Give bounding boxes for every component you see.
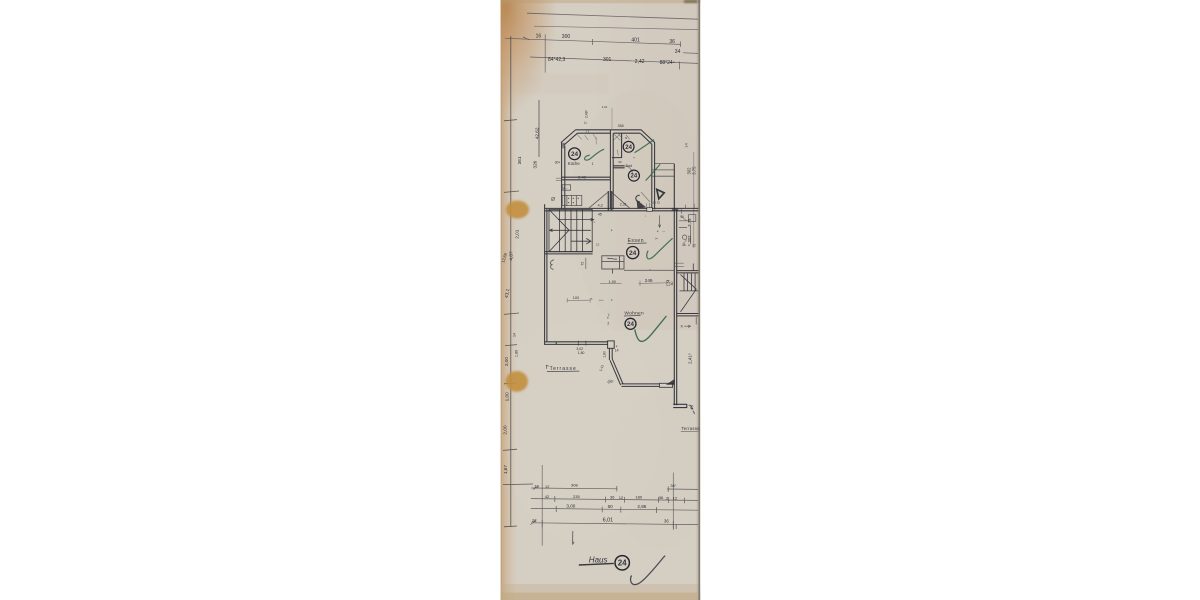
svg-text:34: 34 <box>675 49 681 55</box>
svg-text:308: 308 <box>571 483 578 488</box>
svg-text:1,80: 1,80 <box>578 351 585 355</box>
svg-text:Küche: Küche <box>568 161 581 166</box>
svg-text:12: 12 <box>619 495 624 500</box>
svg-text:100: 100 <box>573 296 579 300</box>
svg-text:16: 16 <box>536 34 542 40</box>
svg-text:22: 22 <box>692 244 696 248</box>
svg-text:36⁽: 36⁽ <box>670 483 675 488</box>
svg-text:K←: K← <box>563 186 569 190</box>
svg-text:301: 301 <box>603 57 612 63</box>
svg-text:88°24ⁿ: 88°24ⁿ <box>660 60 675 66</box>
svg-text:12: 12 <box>673 496 678 501</box>
svg-text:326: 326 <box>533 160 538 168</box>
svg-text:2,00: 2,00 <box>504 357 509 367</box>
svg-text:80: 80 <box>670 281 674 285</box>
svg-text:36: 36 <box>664 518 669 523</box>
svg-text:36: 36 <box>669 39 675 45</box>
svg-text:1,67: 1,67 <box>503 465 508 475</box>
svg-text:60: 60 <box>608 504 614 509</box>
svg-text:24: 24 <box>631 174 638 180</box>
svg-text:2: 2 <box>607 321 609 325</box>
svg-text:249: 249 <box>645 278 653 283</box>
svg-text:2,01: 2,01 <box>515 229 520 239</box>
svg-text:30×: 30× <box>555 161 561 165</box>
svg-text:15 32: 15 32 <box>653 200 661 204</box>
svg-text:4.10: 4.10 <box>602 105 608 109</box>
svg-text:36: 36 <box>682 243 686 247</box>
svg-text:3,75: 3,75 <box>691 166 696 175</box>
svg-text:24: 24 <box>625 145 632 151</box>
svg-text:1²: 1² <box>584 121 587 125</box>
svg-text:42: 42 <box>545 494 550 499</box>
svg-text:×: × <box>633 155 635 159</box>
svg-text:1: 1 <box>592 162 594 166</box>
svg-text:235: 235 <box>573 494 580 499</box>
svg-text:↔: ↔ <box>648 267 651 271</box>
svg-text:12: 12 <box>596 243 600 247</box>
svg-text:1,80: 1,80 <box>514 350 518 357</box>
svg-text:1,80: 1,80 <box>602 351 606 358</box>
svg-text:90: 90 <box>618 160 622 164</box>
svg-text:×: × <box>616 344 618 348</box>
svg-text:84°42,3: 84°42,3 <box>548 57 566 63</box>
svg-text:4,3: 4,3 <box>598 204 603 208</box>
svg-text:180: 180 <box>635 495 642 500</box>
svg-text:24: 24 <box>627 321 634 328</box>
svg-text:401: 401 <box>631 38 640 44</box>
svg-text:45: 45 <box>598 212 602 216</box>
svg-text:×: × <box>611 228 613 232</box>
svg-text:×: × <box>591 297 593 301</box>
svg-text:36: 36 <box>610 495 615 500</box>
svg-text:42,62: 42,62 <box>534 127 539 139</box>
svg-text:3,75: 3,75 <box>687 218 692 227</box>
svg-text:14: 14 <box>513 333 517 337</box>
svg-text:24: 24 <box>618 559 627 568</box>
svg-text:6,01: 6,01 <box>603 518 614 524</box>
svg-text:14: 14 <box>615 348 619 352</box>
svg-text:3,00: 3,00 <box>566 504 575 509</box>
svg-text:×: × <box>657 230 659 234</box>
svg-text:358: 358 <box>618 124 624 128</box>
svg-text:16: 16 <box>534 483 539 488</box>
svg-text:14: 14 <box>685 143 689 147</box>
svg-text:2,48⁵: 2,48⁵ <box>585 109 589 118</box>
svg-text:×: × <box>607 316 609 320</box>
svg-text:×: × <box>593 220 595 224</box>
svg-text:16: 16 <box>532 518 537 523</box>
svg-text:↔: ↔ <box>662 229 665 233</box>
svg-text:2,85: 2,85 <box>637 504 646 509</box>
svg-text:⌀: ⌀ <box>688 243 690 247</box>
svg-text:×: × <box>611 298 613 302</box>
svg-text:361: 361 <box>517 156 522 164</box>
svg-text:300: 300 <box>562 34 571 40</box>
svg-text:1,90: 1,90 <box>609 280 616 284</box>
svg-text:2,42: 2,42 <box>635 59 645 65</box>
svg-text:24: 24 <box>571 151 579 158</box>
svg-text:Haus: Haus <box>589 555 608 564</box>
svg-text:24: 24 <box>629 250 637 257</box>
svg-text:12: 12 <box>545 484 550 489</box>
svg-text:Terrasse: Terrasse <box>681 426 700 431</box>
svg-text:2,48: 2,48 <box>578 174 587 179</box>
svg-text:302: 302 <box>687 235 692 243</box>
svg-text:1,00: 1,00 <box>504 392 509 402</box>
svg-text:36: 36 <box>659 495 664 500</box>
svg-text:2,00: 2,00 <box>503 425 508 435</box>
svg-text:72: 72 <box>581 262 585 266</box>
svg-text:2,31: 2,31 <box>620 202 627 206</box>
svg-text:⊢: ⊢ <box>655 237 658 241</box>
svg-text:2,41⁵: 2,41⁵ <box>688 353 693 364</box>
svg-text:4,87: 4,87 <box>508 251 513 261</box>
